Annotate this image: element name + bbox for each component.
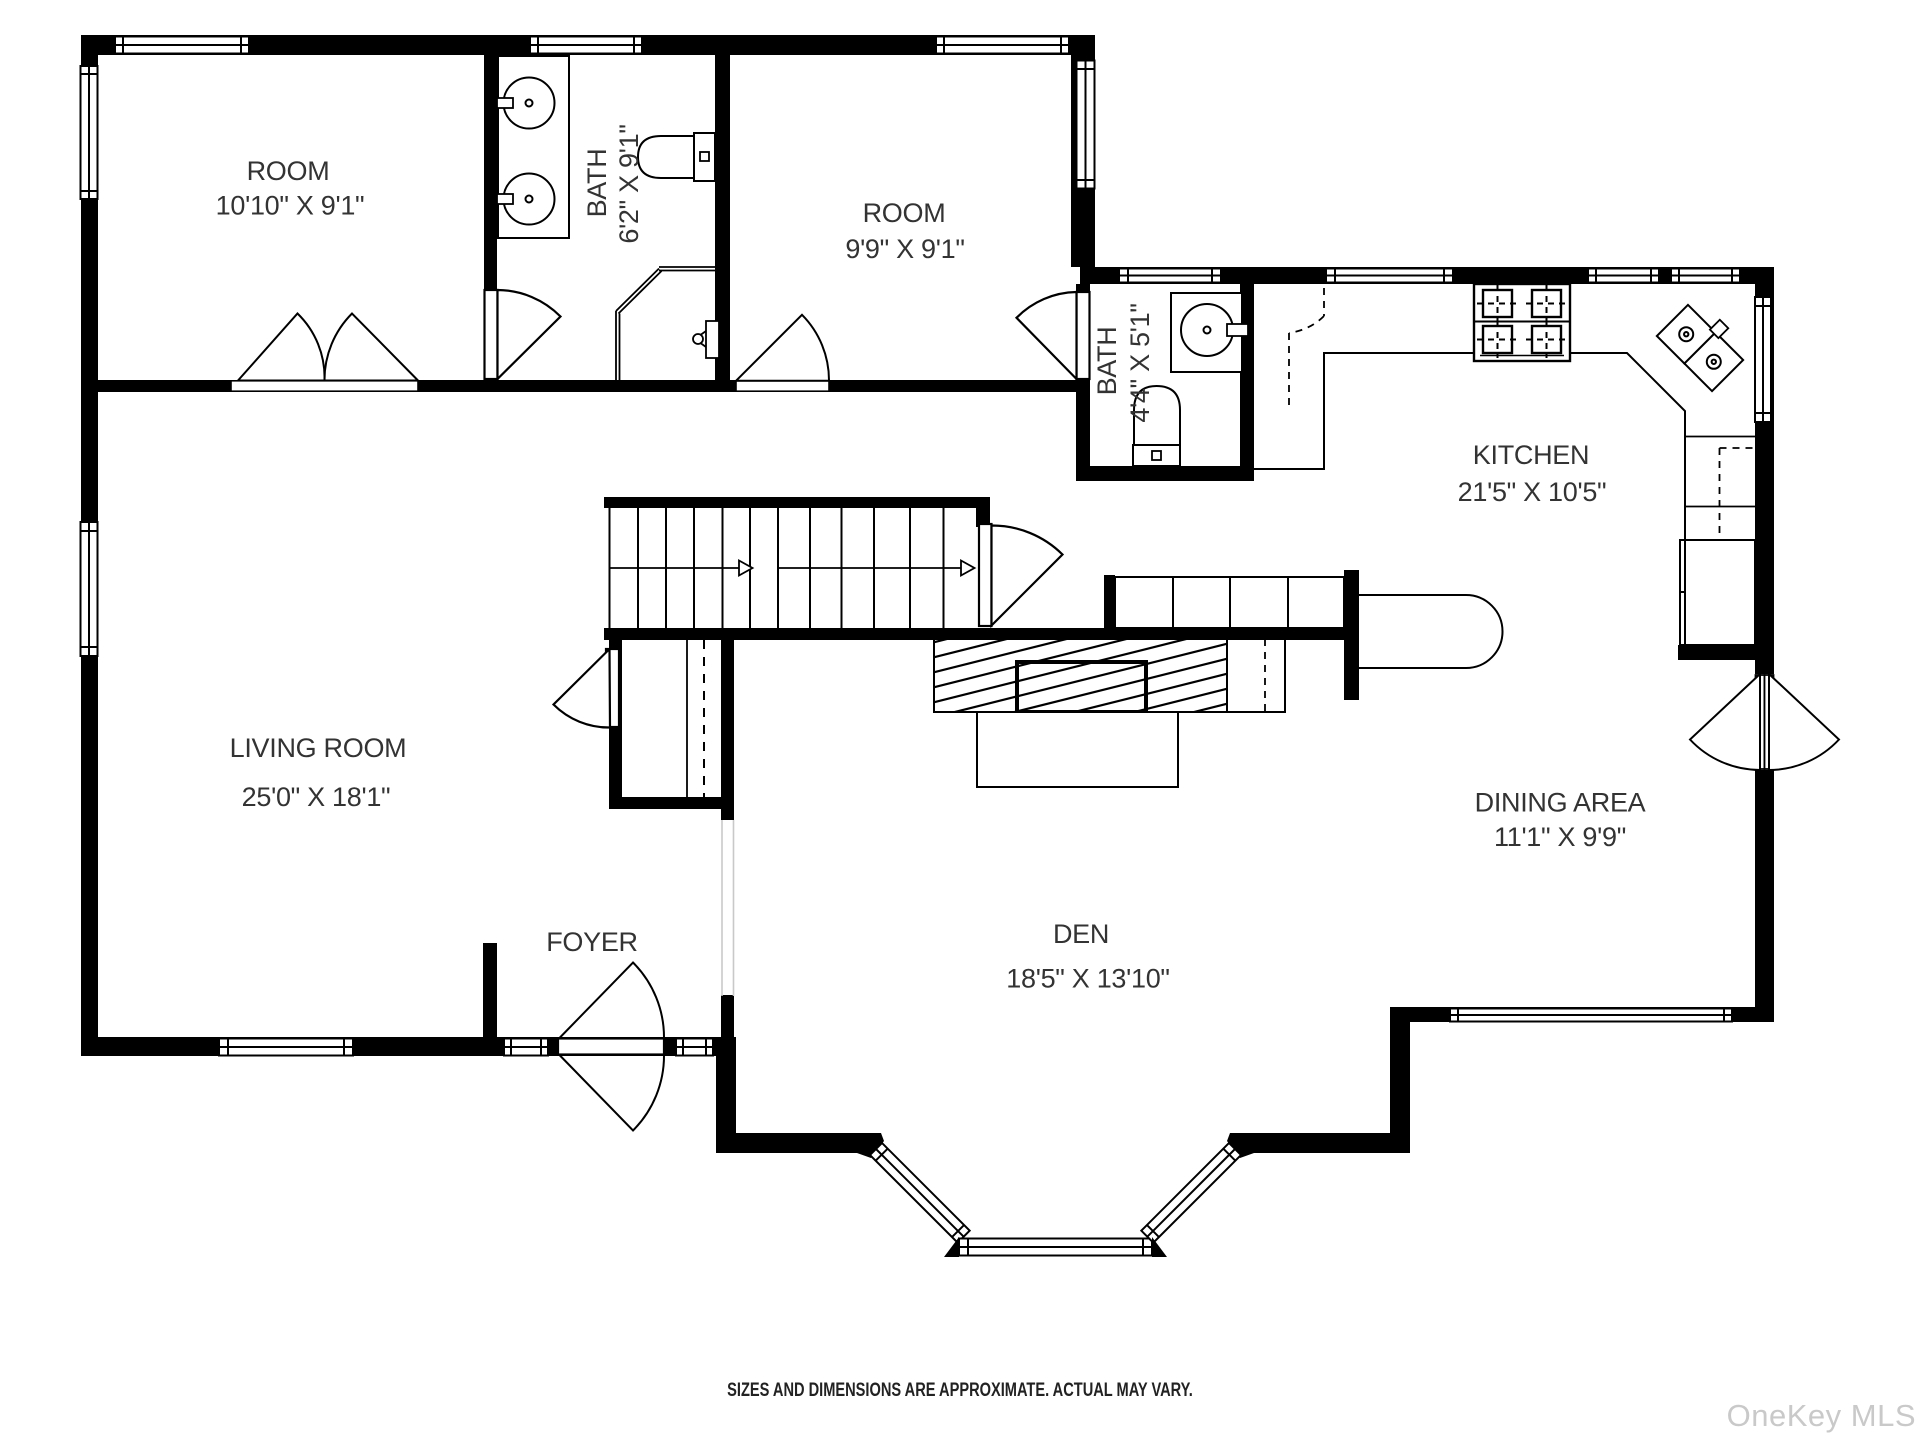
- svg-text:ROOM: ROOM: [247, 156, 330, 186]
- svg-text:BATH: BATH: [1092, 327, 1122, 396]
- svg-text:BATH: BATH: [582, 149, 612, 218]
- svg-text:LIVING ROOM: LIVING ROOM: [230, 733, 407, 763]
- svg-text:25'0" X 18'1": 25'0" X 18'1": [242, 782, 391, 812]
- svg-text:10'10" X 9'1": 10'10" X 9'1": [216, 191, 365, 221]
- svg-text:21'5" X 10'5": 21'5" X 10'5": [1458, 477, 1607, 507]
- svg-text:DINING AREA: DINING AREA: [1475, 788, 1646, 818]
- svg-text:OneKey MLS: OneKey MLS: [1727, 1398, 1916, 1433]
- svg-text:KITCHEN: KITCHEN: [1473, 440, 1589, 470]
- svg-text:11'1" X 9'9": 11'1" X 9'9": [1494, 822, 1626, 852]
- svg-text:DEN: DEN: [1053, 919, 1109, 949]
- svg-text:6'2" X 9'1": 6'2" X 9'1": [614, 124, 644, 243]
- svg-text:FOYER: FOYER: [546, 927, 638, 957]
- svg-text:9'9" X 9'1": 9'9" X 9'1": [845, 234, 964, 264]
- svg-text:4'4" X 5'1": 4'4" X 5'1": [1125, 303, 1155, 422]
- svg-text:SIZES AND DIMENSIONS ARE APPRO: SIZES AND DIMENSIONS ARE APPROXIMATE. AC…: [727, 1378, 1193, 1401]
- svg-text:ROOM: ROOM: [863, 198, 946, 228]
- svg-text:18'5" X 13'10": 18'5" X 13'10": [1006, 964, 1169, 994]
